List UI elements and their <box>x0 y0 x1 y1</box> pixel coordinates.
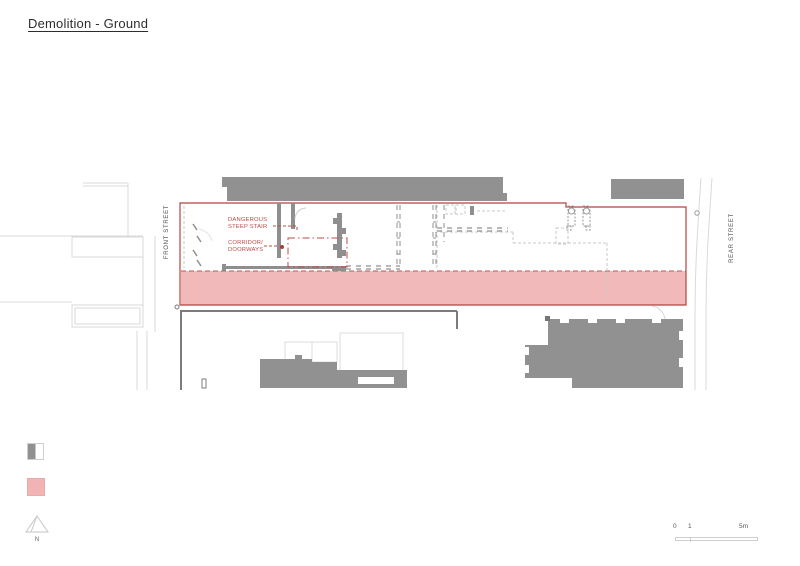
front-door-marks <box>193 224 212 266</box>
stair-note-line1: DANGEROUS <box>228 217 267 223</box>
neighbour-building-north <box>222 177 507 201</box>
demolition-pink-zone <box>181 271 686 305</box>
scale-bar-tick <box>690 537 691 542</box>
west-context-buildings <box>0 183 155 390</box>
scale-label-0: 0 <box>673 523 677 530</box>
rear-street-label: REAR STREET <box>729 213 735 263</box>
scale-label-5m: 5m <box>739 523 748 530</box>
plan-drawing: DANGEROUS STEEP STAIR CORRIDOR/ DOORWAYS… <box>0 0 800 566</box>
corridor-note-line1: CORRIDOR/ <box>228 240 263 246</box>
door-swing-arc <box>295 208 306 219</box>
front-street-label: FRONT STREET <box>164 205 170 259</box>
south-east-building-corner-post <box>545 316 550 321</box>
north-arrow: N <box>24 513 54 545</box>
scale-label-1: 1 <box>688 523 692 530</box>
toilet-fixtures <box>567 206 590 230</box>
south-east-building <box>525 319 683 388</box>
north-label: N <box>35 537 39 543</box>
demolished-walls-dashed <box>346 205 508 269</box>
legend-swatch-demolition-area <box>27 478 45 496</box>
stair-wall <box>337 213 342 258</box>
street-marker-icon <box>695 211 699 215</box>
scale-bar <box>675 537 758 541</box>
corridor-note-dot <box>280 245 284 249</box>
stair-note-line2: STEEP STAIR <box>228 224 267 230</box>
neighbour-building-northeast <box>611 179 684 199</box>
street-labels: FRONT STREET REAR STREET <box>164 205 735 263</box>
corridor-note-line2: DOORWAYS <box>228 247 263 253</box>
demolition-plan-page: Demolition - Ground <box>0 0 800 566</box>
red-annotations: DANGEROUS STEEP STAIR CORRIDOR/ DOORWAYS <box>228 217 347 267</box>
legend-swatch-retained-building <box>27 443 44 460</box>
north-neighbour-buildings <box>222 177 684 201</box>
